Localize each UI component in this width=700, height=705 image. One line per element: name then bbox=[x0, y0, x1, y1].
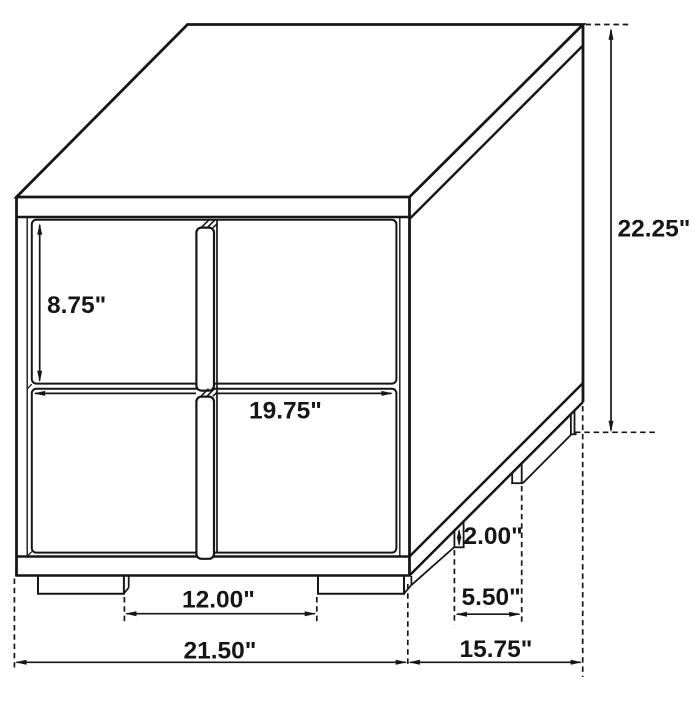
svg-text:2.00": 2.00" bbox=[464, 523, 523, 550]
svg-text:19.75": 19.75" bbox=[249, 398, 322, 425]
svg-text:8.75": 8.75" bbox=[47, 292, 106, 319]
svg-text:12.00": 12.00" bbox=[182, 587, 255, 614]
svg-text:15.75": 15.75" bbox=[460, 636, 533, 663]
svg-text:22.25": 22.25" bbox=[618, 215, 691, 242]
svg-text:5.50": 5.50" bbox=[462, 584, 521, 611]
svg-text:21.50": 21.50" bbox=[184, 637, 257, 664]
